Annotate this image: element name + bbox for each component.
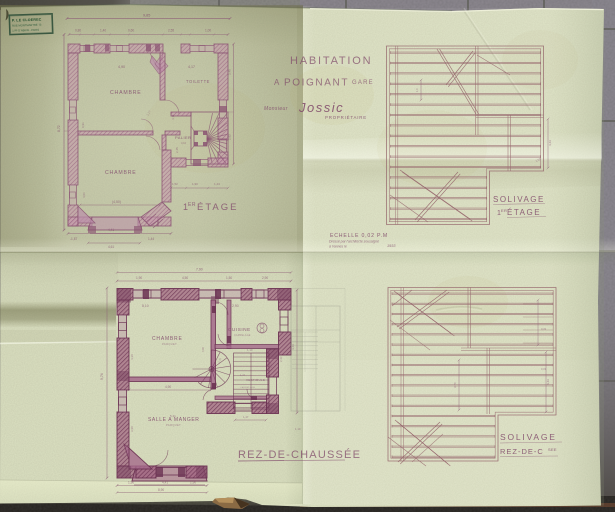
- svg-text:Jossic: Jossic: [298, 100, 344, 115]
- svg-text:4,43: 4,43: [548, 140, 552, 146]
- svg-text:1933: 1933: [387, 244, 396, 248]
- svg-text:Monsieur: Monsieur: [264, 106, 288, 112]
- svg-text:2,33: 2,33: [279, 356, 283, 362]
- svg-text:ER: ER: [188, 202, 196, 208]
- svg-text:8,72: 8,72: [57, 125, 61, 132]
- svg-text:HABITATION: HABITATION: [290, 55, 372, 67]
- svg-text:0,80: 0,80: [201, 346, 205, 352]
- svg-text:9,85: 9,85: [143, 14, 150, 18]
- svg-text:4,90: 4,90: [165, 385, 171, 389]
- svg-text:5,41: 5,41: [170, 414, 176, 418]
- svg-text:1,44: 1,44: [148, 237, 154, 241]
- svg-text:2,55: 2,55: [168, 29, 174, 33]
- svg-text:0,91: 0,91: [81, 122, 85, 128]
- svg-text:1,90: 1,90: [128, 481, 134, 485]
- svg-text:SOLIVAGE: SOLIVAGE: [500, 432, 557, 442]
- svg-text:1,47: 1,47: [240, 373, 246, 377]
- svg-text:9,74: 9,74: [100, 373, 104, 380]
- svg-text:4,11: 4,11: [171, 114, 175, 120]
- svg-text:1,90: 1,90: [190, 481, 196, 485]
- svg-text:SOLIVAGE: SOLIVAGE: [493, 195, 545, 204]
- svg-text:REZ-DE-CHAUSSÉE: REZ-DE-CHAUSSÉE: [238, 448, 361, 461]
- svg-text:ECHELLE 0,02 P.M: ECHELLE 0,02 P.M: [330, 233, 388, 239]
- svg-text:CUISINE: CUISINE: [228, 327, 251, 332]
- svg-text:0,60: 0,60: [128, 29, 134, 33]
- svg-text:4,43: 4,43: [291, 344, 295, 350]
- svg-text:CHAMBRE: CHAMBRE: [110, 90, 142, 96]
- svg-text:1,47: 1,47: [243, 415, 249, 419]
- svg-text:1,44: 1,44: [214, 182, 220, 186]
- svg-text:CARRELAGE: CARRELAGE: [234, 334, 251, 337]
- svg-text:GARE: GARE: [352, 80, 374, 86]
- svg-text:4,30: 4,30: [130, 354, 134, 360]
- svg-text:4,17: 4,17: [188, 65, 195, 69]
- svg-text:PROPRIÉTAIRE: PROPRIÉTAIRE: [325, 115, 367, 120]
- svg-text:4,50: 4,50: [182, 276, 188, 280]
- svg-text:0,33: 0,33: [541, 367, 547, 371]
- svg-text:POIGNANT: POIGNANT: [284, 78, 349, 89]
- svg-text:1,90: 1,90: [192, 182, 198, 186]
- svg-text:CHAMBRE: CHAMBRE: [152, 336, 183, 342]
- svg-text:Dressé par l’architecte soussi: Dressé par l’architecte soussigné: [329, 240, 379, 244]
- svg-text:4,41: 4,41: [108, 228, 114, 232]
- svg-text:7,90: 7,90: [196, 268, 203, 272]
- svg-text:PALIER: PALIER: [175, 135, 191, 140]
- svg-text:8,90: 8,90: [158, 488, 164, 492]
- svg-text:4,01: 4,01: [82, 192, 86, 198]
- svg-text:1,40: 1,40: [100, 29, 106, 33]
- svg-text:0,80: 0,80: [75, 29, 81, 33]
- svg-text:PARQUET: PARQUET: [166, 423, 181, 427]
- svg-text:ÉTAGE: ÉTAGE: [197, 202, 239, 213]
- svg-text:(4,50): (4,50): [112, 200, 121, 204]
- svg-text:4,61: 4,61: [108, 245, 114, 249]
- svg-text:1,00: 1,00: [205, 29, 211, 33]
- svg-text:1,10: 1,10: [295, 427, 301, 431]
- svg-text:CARRELAGE: CARRELAGE: [240, 386, 256, 389]
- svg-text:1,90: 1,90: [136, 276, 142, 280]
- svg-text:0,94: 0,94: [181, 141, 187, 145]
- svg-text:2,62: 2,62: [228, 134, 232, 140]
- svg-text:4,43: 4,43: [546, 379, 550, 385]
- svg-text:4,90: 4,90: [118, 65, 125, 69]
- svg-text:PARQUET: PARQUET: [162, 342, 177, 346]
- svg-text:REZ-DE-C: REZ-DE-C: [500, 447, 544, 456]
- svg-text:A: A: [274, 78, 280, 87]
- svg-text:1,0: 1,0: [415, 88, 419, 92]
- svg-text:0,33: 0,33: [541, 327, 547, 331]
- svg-text:3,90: 3,90: [130, 426, 134, 432]
- svg-text:2,45: 2,45: [175, 147, 179, 153]
- svg-text:ÉTAGE: ÉTAGE: [507, 208, 541, 217]
- svg-text:3,45: 3,45: [228, 69, 232, 75]
- svg-text:4,41: 4,41: [162, 481, 168, 485]
- svg-text:2,90: 2,90: [232, 304, 239, 308]
- svg-text:TOILETTE: TOILETTE: [186, 79, 210, 84]
- svg-text:1,47: 1,47: [270, 363, 273, 368]
- svg-text:SEE: SEE: [548, 447, 557, 452]
- svg-text:VESTIBULE: VESTIBULE: [246, 378, 265, 382]
- svg-text:1,52: 1,52: [172, 182, 178, 186]
- svg-text:8,10: 8,10: [142, 304, 149, 308]
- svg-text:à Vannes le: à Vannes le: [329, 245, 347, 249]
- svg-text:3,70: 3,70: [453, 382, 457, 388]
- svg-text:CHAMBRE: CHAMBRE: [105, 170, 137, 176]
- svg-text:1,10: 1,10: [247, 348, 253, 352]
- svg-text:1,50: 1,50: [226, 276, 232, 280]
- svg-text:-1,87: -1,87: [70, 237, 77, 241]
- svg-text:2,90: 2,90: [262, 276, 268, 280]
